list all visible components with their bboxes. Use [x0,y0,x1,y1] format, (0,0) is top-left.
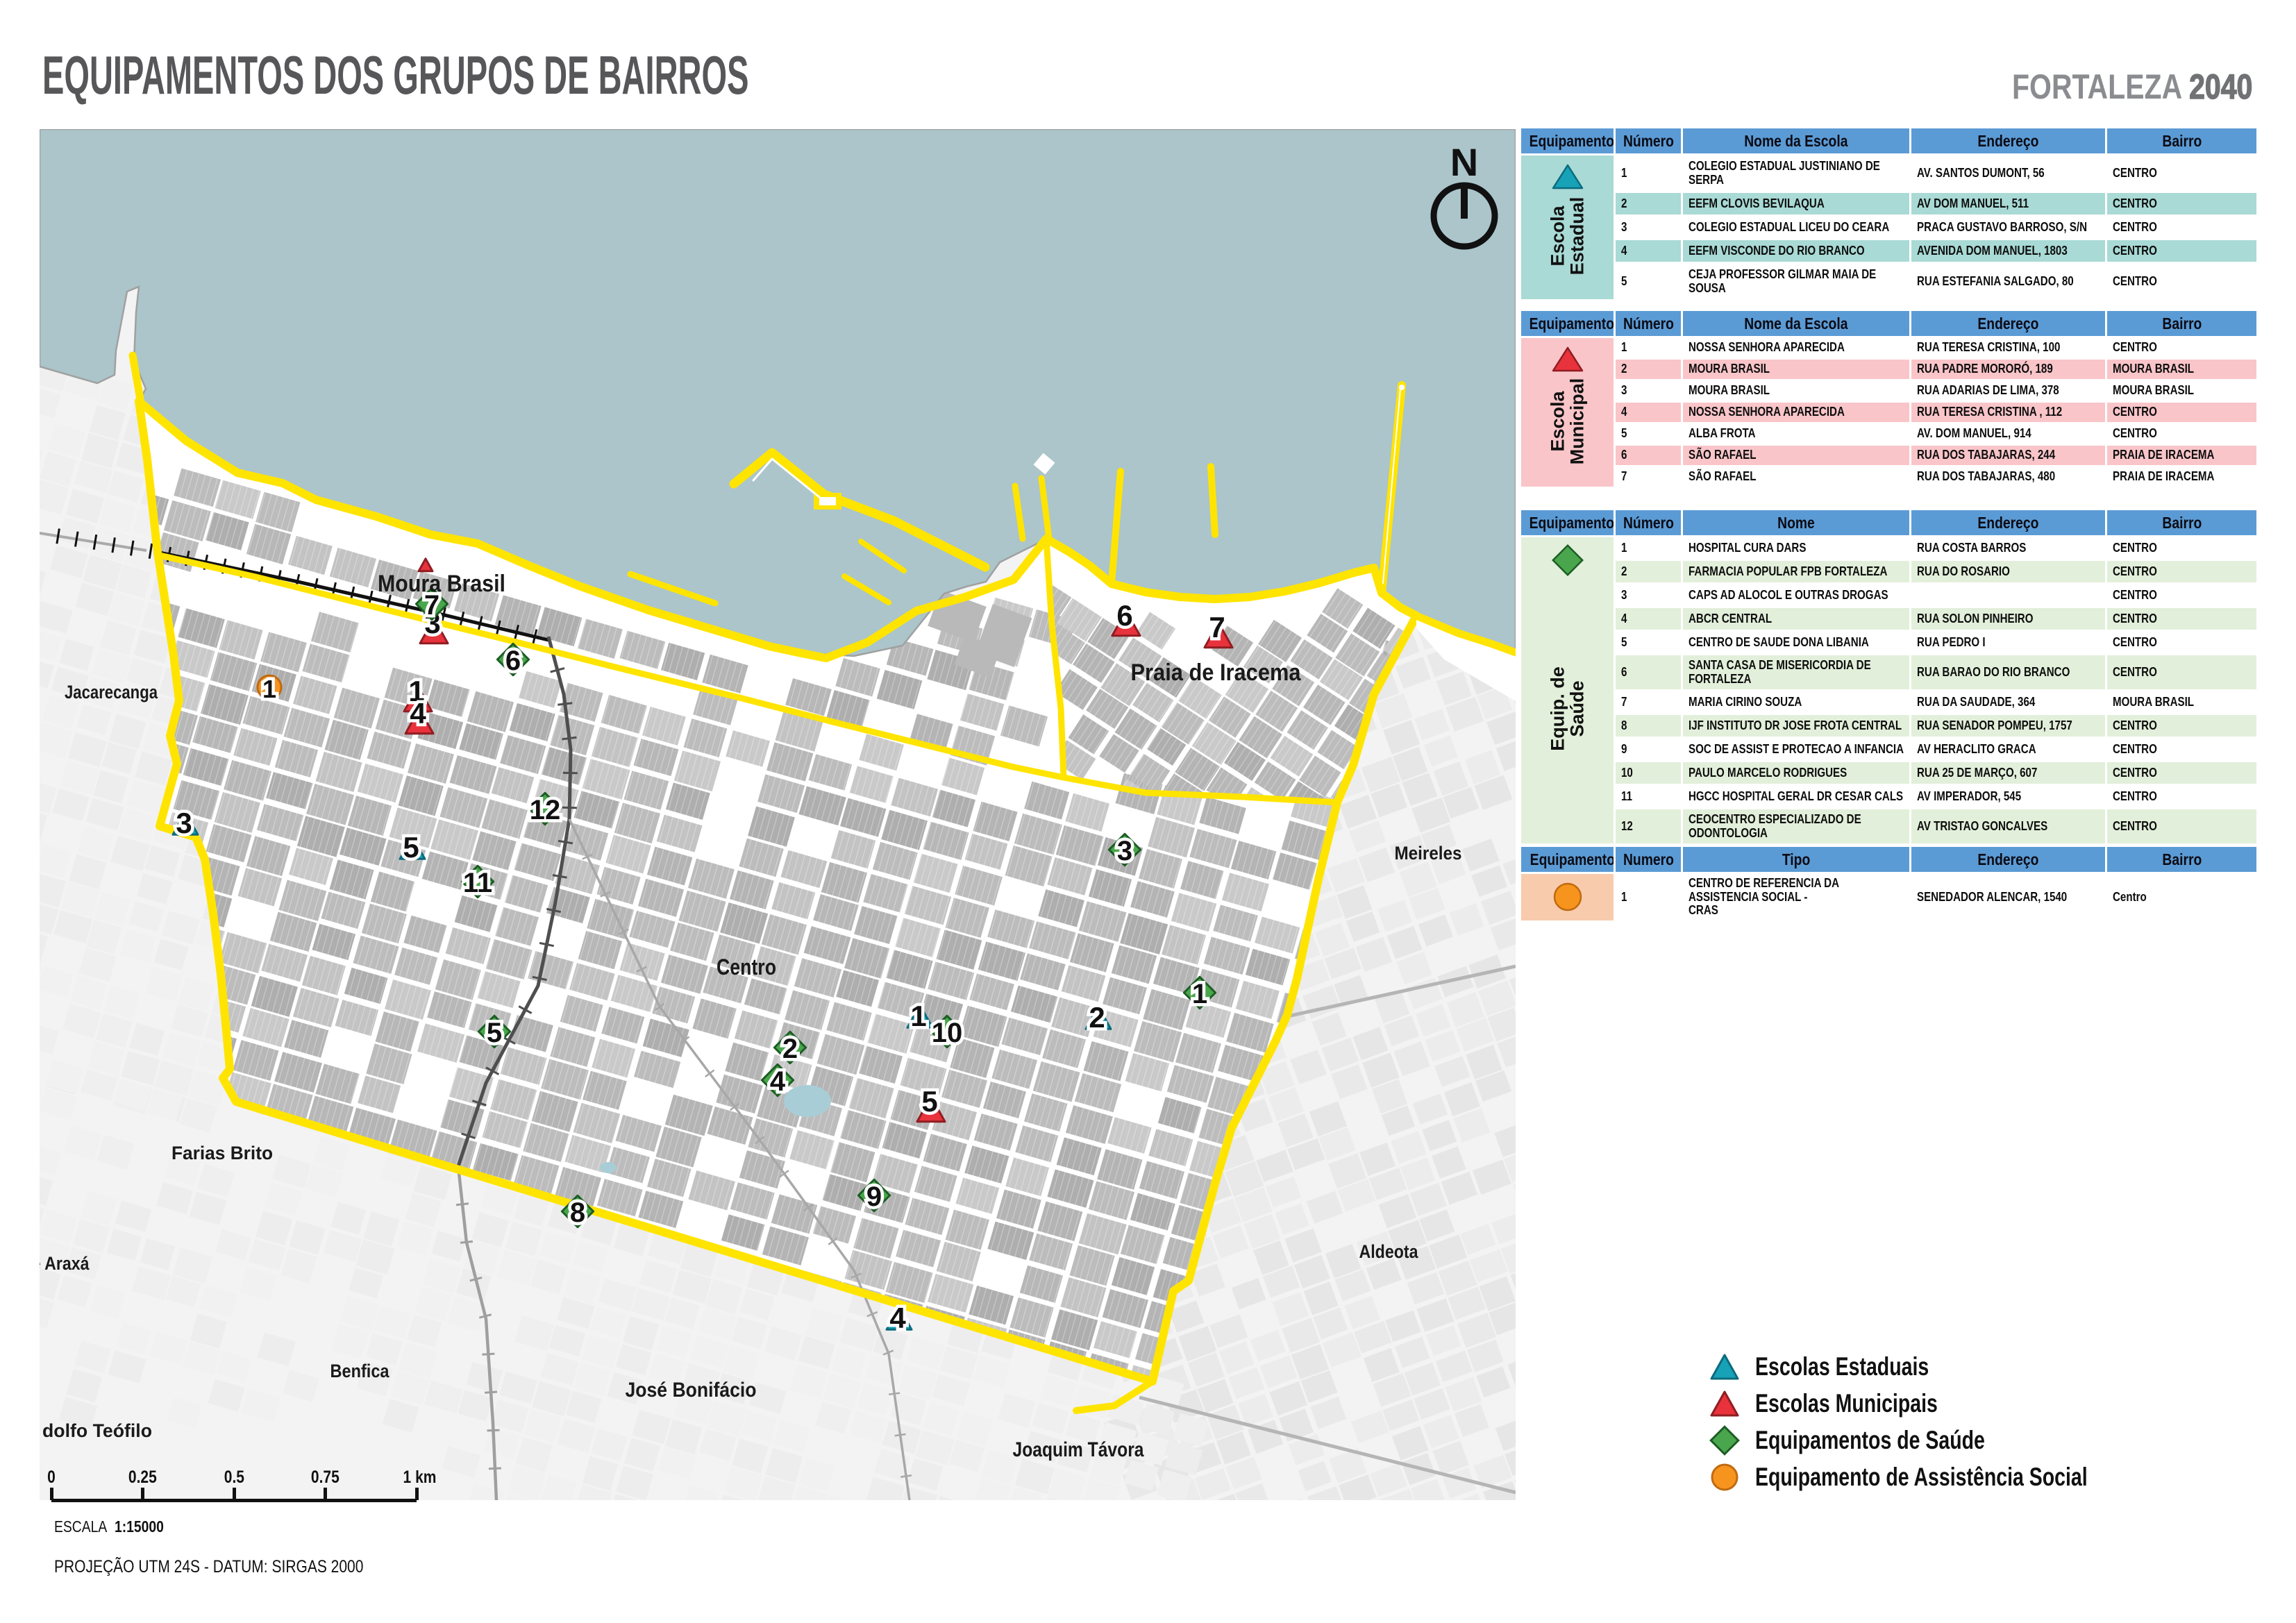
svg-text:2: 2 [1089,1001,1105,1034]
svg-text:12: 12 [530,795,561,825]
svg-text:Jacarecanga: Jacarecanga [65,682,158,703]
svg-text:3: 3 [1117,836,1132,866]
svg-text:4: 4 [889,1302,906,1334]
svg-text:Meireles: Meireles [1395,843,1462,864]
svg-text:10: 10 [932,1018,963,1048]
svg-text:Praia de Iracema: Praia de Iracema [1131,659,1302,686]
svg-text:8: 8 [570,1197,585,1228]
svg-text:José Bonifácio: José Bonifácio [626,1379,757,1402]
svg-text:1: 1 [262,675,276,703]
svg-text:6: 6 [505,646,521,676]
svg-text:Moura Brasil: Moura Brasil [378,571,505,597]
svg-text:ue Araxá: ue Araxá [40,1253,90,1274]
svg-text:5: 5 [487,1018,502,1048]
svg-text:5: 5 [921,1085,937,1118]
svg-text:1: 1 [1192,979,1207,1009]
svg-text:Centro: Centro [717,955,776,979]
svg-text:1: 1 [910,1000,926,1032]
svg-text:N: N [1450,140,1478,184]
svg-text:5: 5 [403,831,419,864]
svg-text:Farias Brito: Farias Brito [171,1143,273,1163]
svg-text:dolfo Teófilo: dolfo Teófilo [42,1420,152,1441]
svg-text:9: 9 [866,1181,882,1212]
svg-text:4: 4 [770,1066,786,1097]
svg-text:3: 3 [176,807,192,839]
svg-text:2: 2 [782,1034,798,1064]
svg-text:11: 11 [463,868,492,898]
svg-text:Aldeota: Aldeota [1359,1241,1419,1262]
svg-text:Benfica: Benfica [330,1361,390,1381]
svg-text:Joaquim Távora: Joaquim Távora [1013,1438,1144,1461]
svg-text:4: 4 [410,697,426,730]
svg-text:6: 6 [1116,599,1132,632]
svg-text:7: 7 [1209,611,1225,644]
